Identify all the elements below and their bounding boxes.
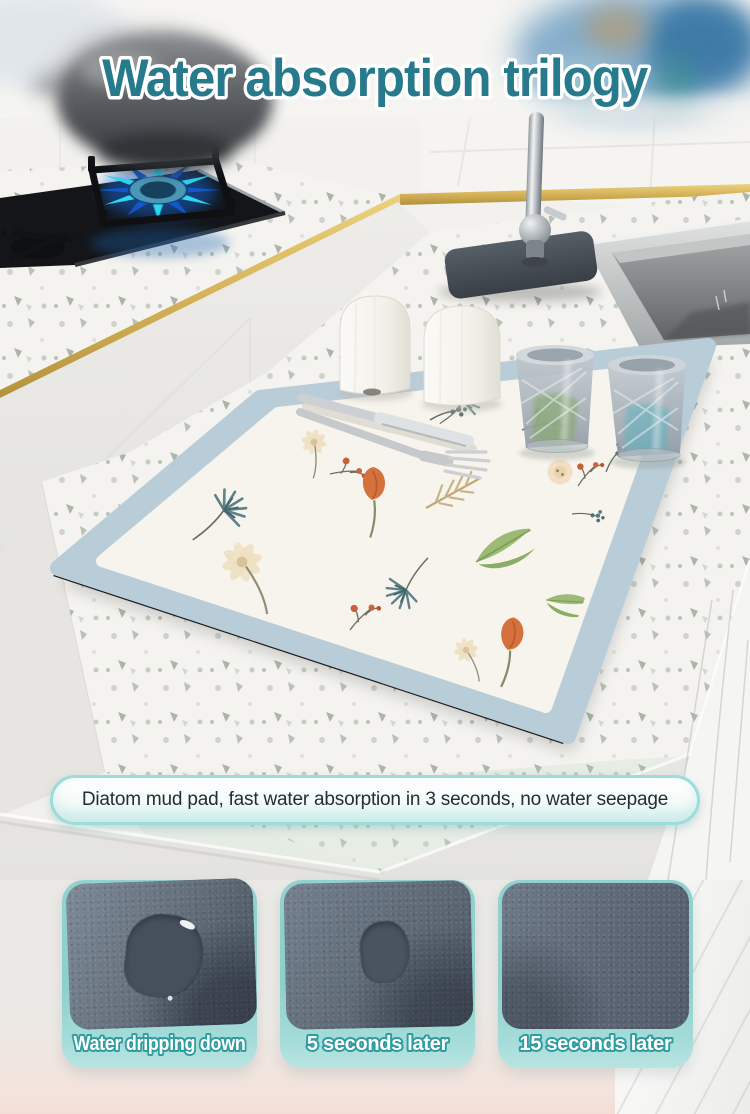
water-highlight [179,918,196,931]
kitchen-scene [0,0,750,880]
step-1-label: Water dripping down [74,1033,246,1055]
step-label-banner: 5 seconds later [280,1028,475,1060]
headline: Water absorption trilogy [0,30,750,120]
mat-photo-5s [283,880,473,1030]
shaker-right [422,306,502,412]
mat-photo-15s [502,883,689,1029]
water-spot-large [122,911,206,1000]
callout-text: Diatom mud pad, fast water absorption in… [82,789,668,811]
callout-banner: Diatom mud pad, fast water absorption in… [50,775,700,825]
shaker-left [337,296,413,401]
water-droplet [167,995,172,1000]
mat-photo-dripping [65,878,257,1030]
glass-left [516,345,595,460]
step-card-1: Water dripping down [62,880,257,1068]
step-card-2: 5 seconds later [280,880,475,1068]
flame-reflection [90,228,230,258]
page-title: Water absorption trilogy [102,48,649,107]
step-label-banner: Water dripping down [62,1028,257,1060]
product-poster: Water absorption trilogy Diatom mud pad,… [0,0,750,1114]
water-spot-small [358,920,411,984]
glass-right [608,355,686,469]
step-2-label: 5 seconds later [307,1033,449,1055]
step-3-label: 15 seconds later [520,1033,672,1055]
step-card-3: 15 seconds later [498,880,693,1068]
step-label-banner: 15 seconds later [498,1028,693,1060]
